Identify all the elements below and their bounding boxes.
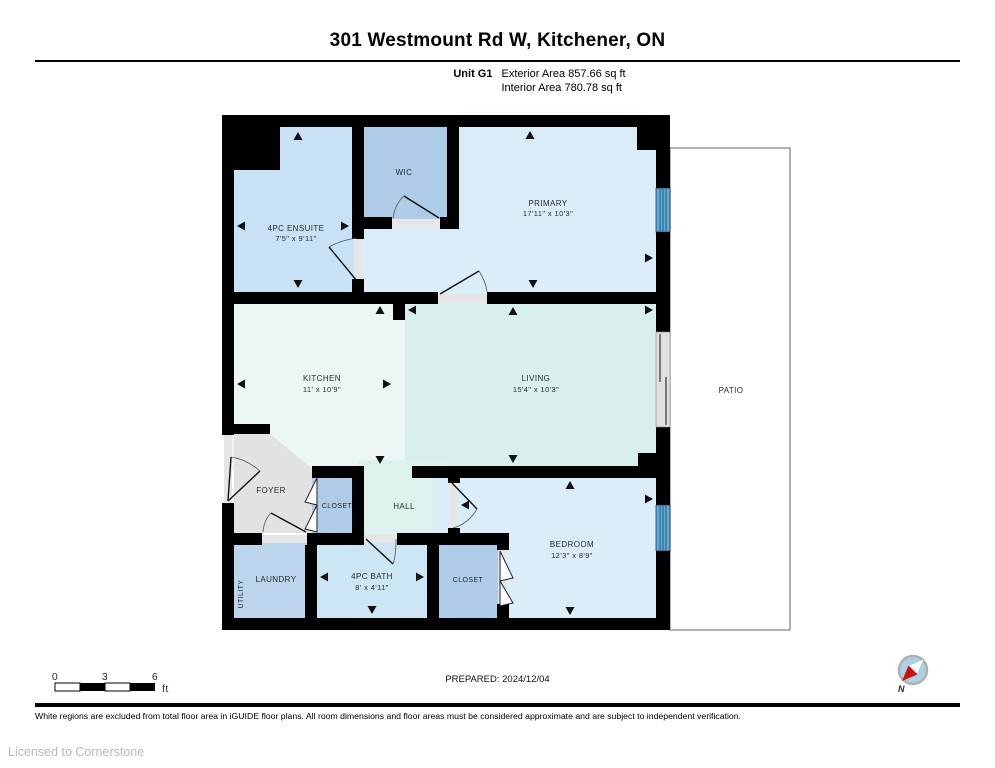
room-wic-label: WIC: [396, 168, 413, 177]
room-utility-label: UTILITY: [238, 580, 245, 609]
room-primary-label: PRIMARY: [528, 199, 567, 208]
room-closet1-label: CLOSET: [322, 503, 353, 510]
room-bedroom-label: BEDROOM: [550, 540, 594, 549]
room-hall-label: HALL: [393, 502, 415, 511]
room-living-floor: [405, 298, 662, 470]
disclaimer-text: White regions are excluded from total fl…: [35, 711, 960, 721]
room-living-dims: 15'4" x 10'3": [513, 385, 559, 394]
compass-north-label: N: [898, 684, 905, 694]
room-ensuite-dims: 7'5" x 9'11": [275, 234, 316, 243]
floorplan-canvas: 4PC ENSUITE 7'5" x 9'11" WIC PRIMARY 17'…: [0, 0, 995, 768]
room-laundry-label: LAUNDRY: [256, 575, 297, 584]
room-foyer-label: FOYER: [256, 486, 286, 495]
room-bedroom-dims: 12'3" x 8'9": [551, 551, 593, 560]
room-closet2-label: CLOSET: [453, 577, 484, 584]
license-text: Licensed to Cornerstone: [8, 745, 144, 759]
footer-divider: [35, 703, 960, 707]
sliding-door-patio: [656, 332, 670, 427]
window-primary: [656, 188, 670, 232]
room-primary-dims: 17'11" x 10'3": [523, 209, 573, 218]
room-kitchen-dims: 11' x 10'9": [303, 385, 341, 394]
room-bath-dims: 8' x 4'11": [355, 583, 389, 592]
prepared-date: PREPARED: 2024/12/04: [0, 674, 995, 685]
room-living-label: LIVING: [522, 374, 551, 383]
room-kitchen-label: KITCHEN: [303, 374, 341, 383]
room-ensuite-label: 4PC ENSUITE: [268, 224, 325, 233]
room-patio-label: PATIO: [719, 386, 744, 395]
room-bath-label: 4PC BATH: [351, 572, 393, 581]
window-bedroom: [656, 505, 670, 551]
